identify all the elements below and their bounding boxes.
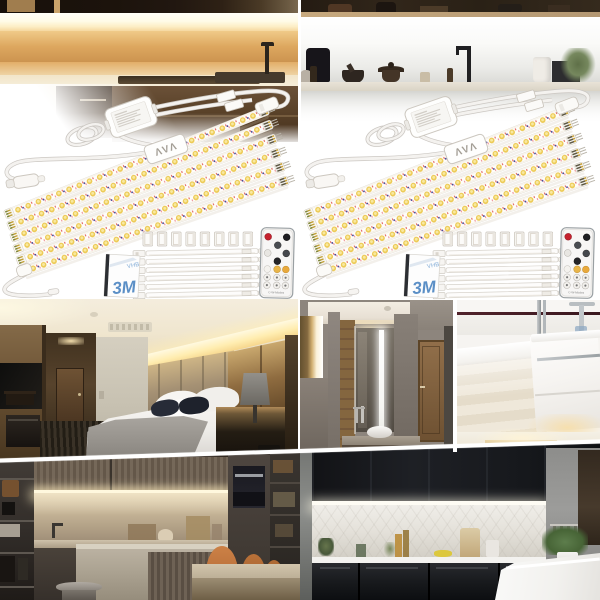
svg-text:C-W-Modes: C-W-Modes <box>268 290 285 294</box>
svg-text:C-W-Modes: C-W-Modes <box>568 290 585 294</box>
svg-text:3M: 3M <box>111 277 137 298</box>
svg-text:3M: 3M <box>411 277 437 298</box>
